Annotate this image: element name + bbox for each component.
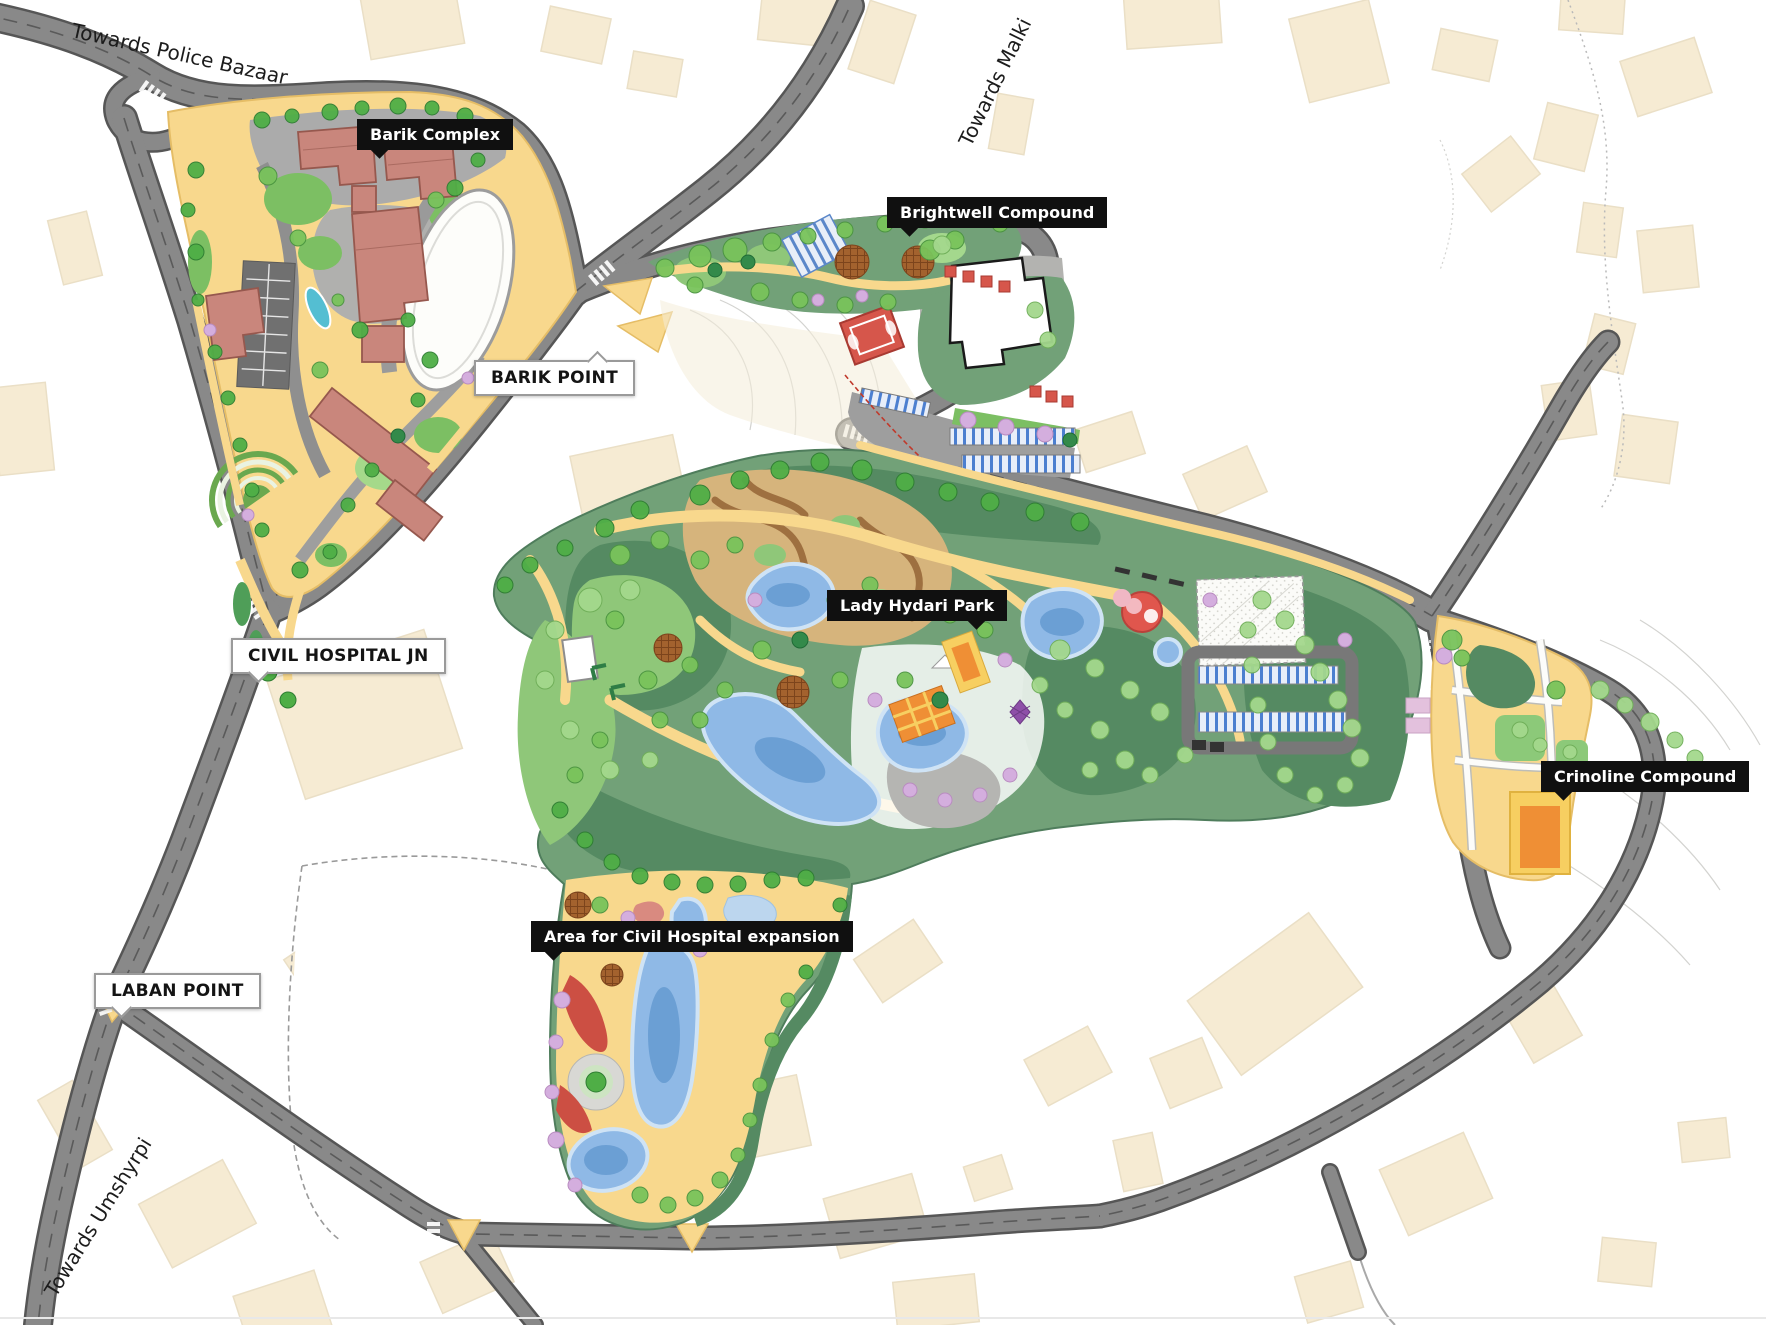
callout-brightwell-compound: Brightwell Compound — [887, 197, 1107, 228]
callout-civil-hospital-jn: CIVIL HOSPITAL JN — [231, 638, 446, 674]
masterplan-map: Towards Police Bazaar Towards Malki Towa… — [0, 0, 1766, 1325]
callout-barik-complex: Barik Complex — [357, 119, 513, 150]
callout-civil-hospital-expansion: Area for Civil Hospital expansion — [531, 921, 853, 952]
callout-crinoline-compound: Crinoline Compound — [1541, 761, 1749, 792]
callout-laban-point: LABAN POINT — [94, 973, 261, 1009]
callout-barik-point: BARIK POINT — [474, 360, 635, 396]
callout-lady-hydari-park: Lady Hydari Park — [827, 590, 1007, 621]
